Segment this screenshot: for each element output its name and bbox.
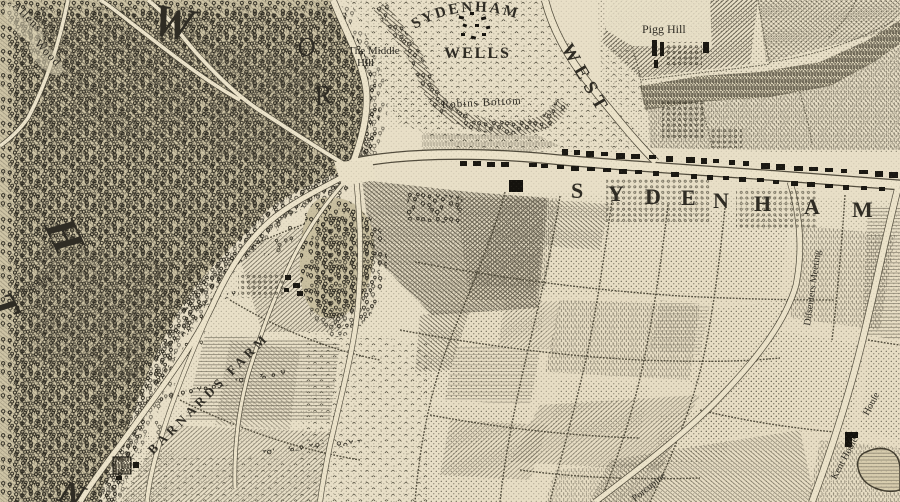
svg-text:D: D [645, 184, 661, 209]
svg-text:Pigg Hill: Pigg Hill [642, 22, 686, 36]
svg-text:E: E [681, 185, 696, 210]
svg-text:M: M [852, 197, 873, 222]
svg-text:WELLS: WELLS [444, 45, 511, 62]
svg-text:N: N [713, 188, 729, 213]
svg-text:Hill: Hill [357, 57, 374, 69]
svg-text:Y: Y [608, 181, 624, 206]
svg-text:The Middle: The Middle [348, 45, 400, 57]
svg-text:S: S [571, 178, 583, 203]
svg-text:A: A [804, 194, 820, 219]
svg-text:H: H [754, 191, 771, 216]
